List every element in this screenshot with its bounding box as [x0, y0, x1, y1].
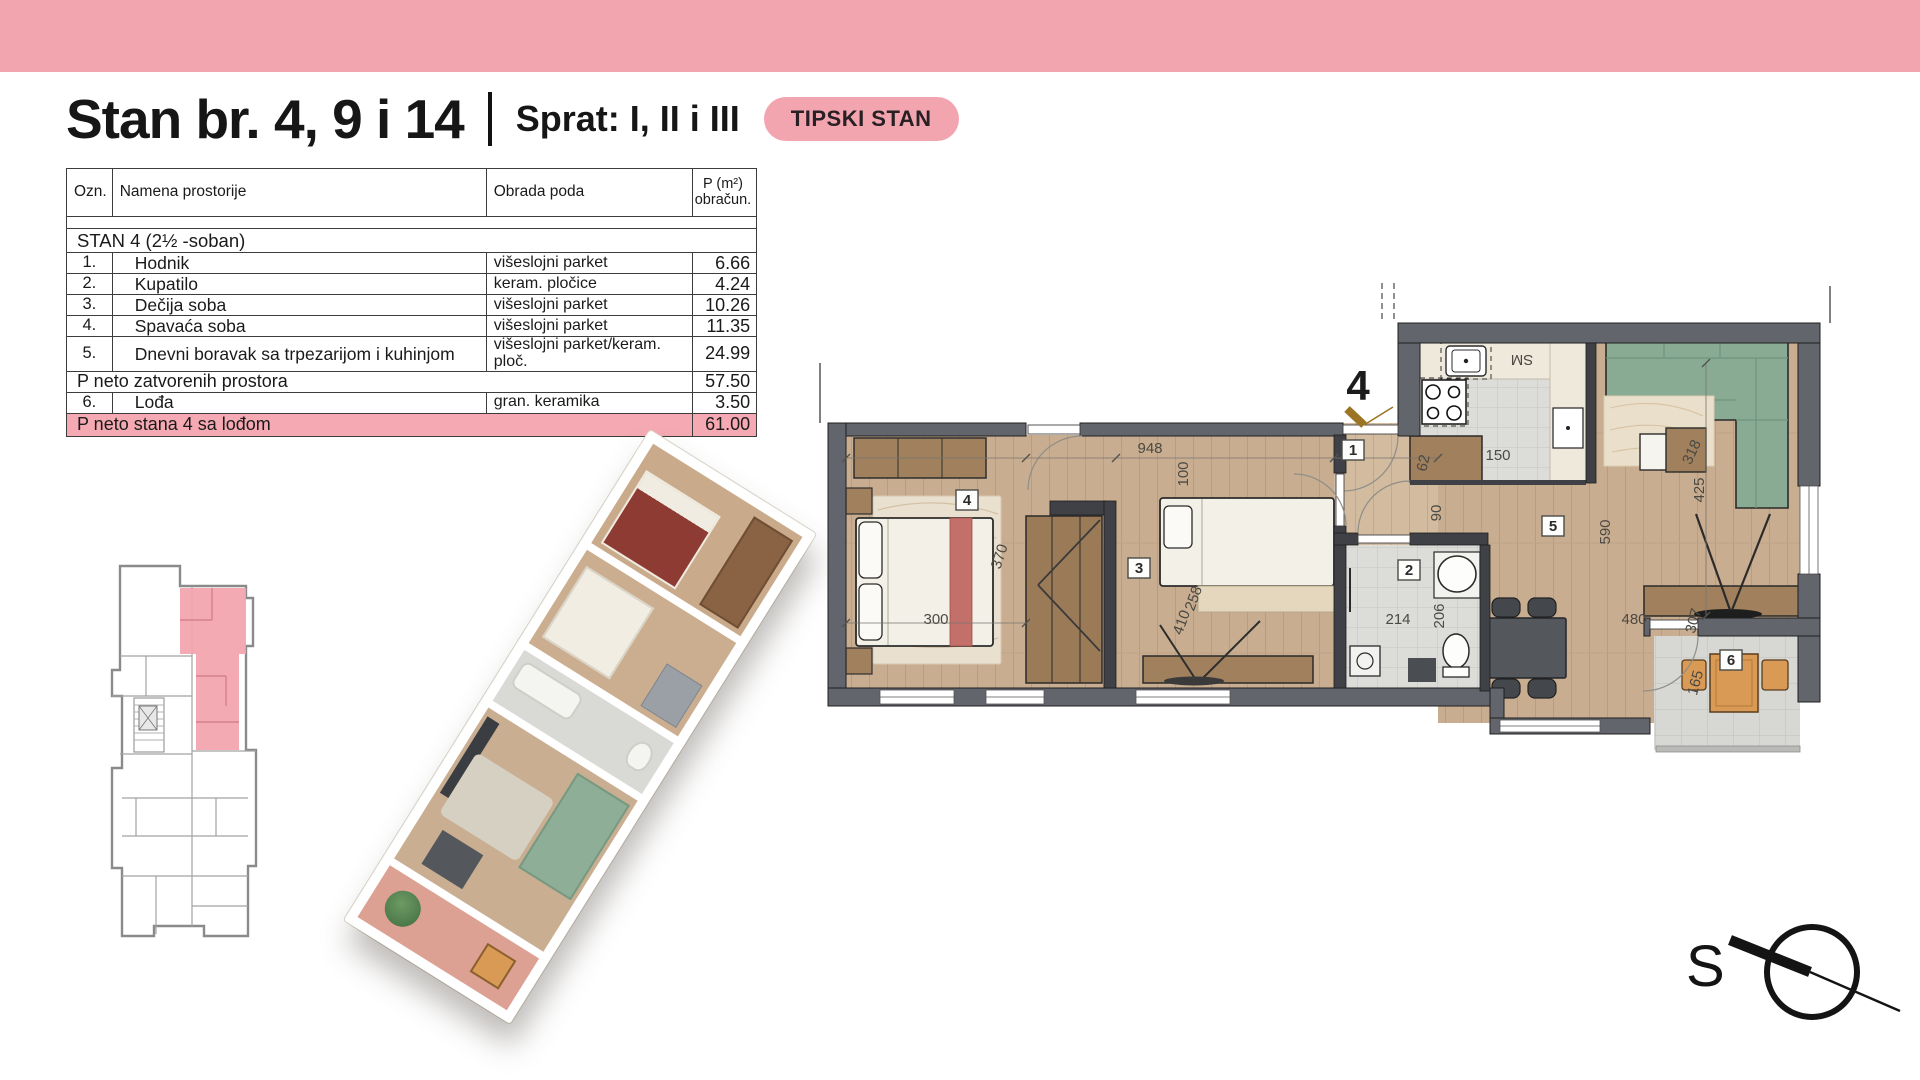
closet-cabinet — [1026, 516, 1102, 683]
washing-machine — [1350, 646, 1380, 676]
col-area: P (m²) obračun. — [692, 169, 756, 217]
render-loggia-table — [469, 943, 516, 990]
bed-bench — [1198, 586, 1334, 612]
row-name: Lođa — [112, 392, 486, 413]
table-row: 6. Lođa gran. keramika 3.50 — [67, 392, 757, 413]
toilet-tank — [1443, 667, 1469, 677]
table-row: 3. Dečija soba višeslojni parket 10.26 — [67, 295, 757, 316]
render-desk — [641, 663, 703, 728]
row-ozn: 1. — [67, 253, 113, 274]
typical-apartment-badge: TIPSKI STAN — [764, 97, 959, 141]
row-ozn: 4. — [67, 316, 113, 337]
subtotal-area: 57.50 — [692, 371, 756, 392]
row-area: 24.99 — [692, 337, 756, 372]
top-banner — [0, 0, 1920, 72]
dim-948: 948 — [1137, 440, 1162, 457]
pillow — [1164, 506, 1192, 548]
bath-sink — [1438, 556, 1476, 592]
section-title: STAN 4 (2½ -soban) — [67, 229, 757, 253]
loggia-rail — [1656, 746, 1800, 752]
spacer-row — [67, 217, 757, 229]
render-bed-white — [542, 566, 654, 680]
nightstand — [846, 488, 872, 514]
toilet — [1443, 634, 1469, 668]
row-area: 4.24 — [692, 274, 756, 295]
dim-425: 425 — [1691, 477, 1708, 502]
apartment-3d-render — [340, 430, 820, 1030]
dining-table — [1486, 618, 1566, 678]
building-key-plan — [96, 536, 268, 968]
bed-runner — [950, 518, 972, 646]
entrance-label: 4 — [1346, 362, 1370, 409]
subtotal-label: P neto zatvorenih prostora — [67, 371, 693, 392]
table-header-row: Ozn. Namena prostorije Obrada poda P (m²… — [67, 169, 757, 217]
dim-590: 590 — [1597, 519, 1614, 544]
dim-150: 150 — [1485, 447, 1510, 464]
badge-living-room: 5 — [1549, 518, 1557, 535]
compass: S — [1682, 912, 1902, 1024]
badge-loggia: 6 — [1727, 652, 1735, 669]
sink-drain — [1464, 359, 1468, 363]
row-name: Hodnik — [112, 253, 486, 274]
floor-plan: 948 100 62 150 90 318 425 590 300 370 25… — [798, 268, 1838, 768]
table-row: 2. Kupatilo keram. pločice 4.24 — [67, 274, 757, 295]
desk-plate — [1164, 677, 1224, 686]
row-floor: gran. keramika — [486, 392, 692, 413]
row-area: 3.50 — [692, 392, 756, 413]
dim-90: 90 — [1428, 505, 1445, 522]
entrance-arrow-tail — [1364, 407, 1393, 425]
row-floor: višeslojni parket/keram. ploč. — [486, 337, 692, 372]
table-row: 1. Hodnik višeslojni parket 6.66 — [67, 253, 757, 274]
row-name: Kupatilo — [112, 274, 486, 295]
render-dining-table — [421, 830, 483, 889]
col-area-line2: obračun. — [695, 192, 751, 208]
row-floor: višeslojni parket — [486, 316, 692, 337]
render-strip — [344, 430, 817, 1024]
row-ozn: 6. — [67, 392, 113, 413]
row-area: 10.26 — [692, 295, 756, 316]
title-divider — [488, 92, 492, 146]
loggia-chair — [1762, 660, 1788, 690]
bedroom — [846, 438, 1001, 674]
subtotal-row: P neto zatvorenih prostora 57.50 — [67, 371, 757, 392]
page: Stan br. 4, 9 i 14 Sprat: I, II i III TI… — [0, 0, 1920, 1080]
area-table: Ozn. Namena prostorije Obrada poda P (m²… — [66, 168, 757, 437]
table-row: 4. Spavaća soba višeslojni parket 11.35 — [67, 316, 757, 337]
kitchen-base-wall — [1410, 480, 1586, 485]
page-title: Stan br. 4, 9 i 14 — [66, 87, 464, 151]
row-name: Dečija soba — [112, 295, 486, 316]
col-area-line1: P (m²) — [703, 176, 743, 192]
closet — [1026, 516, 1102, 683]
badge-hall: 1 — [1349, 442, 1357, 459]
nightstand — [846, 648, 872, 674]
row-floor: keram. pločice — [486, 274, 692, 295]
render-wardrobe — [699, 516, 793, 629]
entrance-mark: 4 — [1346, 362, 1393, 425]
row-name: Spavaća soba — [112, 316, 486, 337]
row-name: Dnevni boravak sa trpezarijom i kuhinjom — [112, 337, 486, 372]
appliance-label: SM — [1511, 351, 1534, 368]
pillow — [859, 522, 882, 578]
dishwasher-dot — [1566, 426, 1570, 430]
dim-214: 214 — [1385, 611, 1410, 628]
render-plant — [378, 884, 428, 934]
pillow — [859, 584, 882, 640]
dim-300: 300 — [923, 611, 948, 628]
row-area: 11.35 — [692, 316, 756, 337]
section-row: STAN 4 (2½ -soban) — [67, 229, 757, 253]
row-ozn: 5. — [67, 337, 113, 372]
render-toilet — [622, 737, 658, 775]
dim-62: 62 — [1414, 453, 1434, 473]
badge-bathroom: 2 — [1405, 562, 1413, 579]
compass-north-label: S — [1686, 934, 1725, 999]
header: Stan br. 4, 9 i 14 Sprat: I, II i III TI… — [66, 82, 959, 156]
col-obrada: Obrada poda — [486, 169, 692, 217]
dim-100: 100 — [1175, 461, 1192, 486]
row-floor: višeslojni parket — [486, 253, 692, 274]
floor-subtitle: Sprat: I, II i III — [516, 98, 740, 140]
col-namena: Namena prostorije — [112, 169, 486, 217]
bath-mat — [1408, 658, 1436, 682]
badge-bedroom: 4 — [963, 492, 972, 509]
entrance-arrow — [1347, 409, 1364, 425]
dim-480: 480 — [1621, 611, 1646, 628]
row-area: 6.66 — [692, 253, 756, 274]
row-ozn: 2. — [67, 274, 113, 295]
row-ozn: 3. — [67, 295, 113, 316]
row-floor: višeslojni parket — [486, 295, 692, 316]
dim-206: 206 — [1431, 603, 1448, 628]
table-row: 5. Dnevni boravak sa trpezarijom i kuhin… — [67, 337, 757, 372]
col-ozn: Ozn. — [67, 169, 113, 217]
badge-kids-room: 3 — [1135, 560, 1143, 577]
